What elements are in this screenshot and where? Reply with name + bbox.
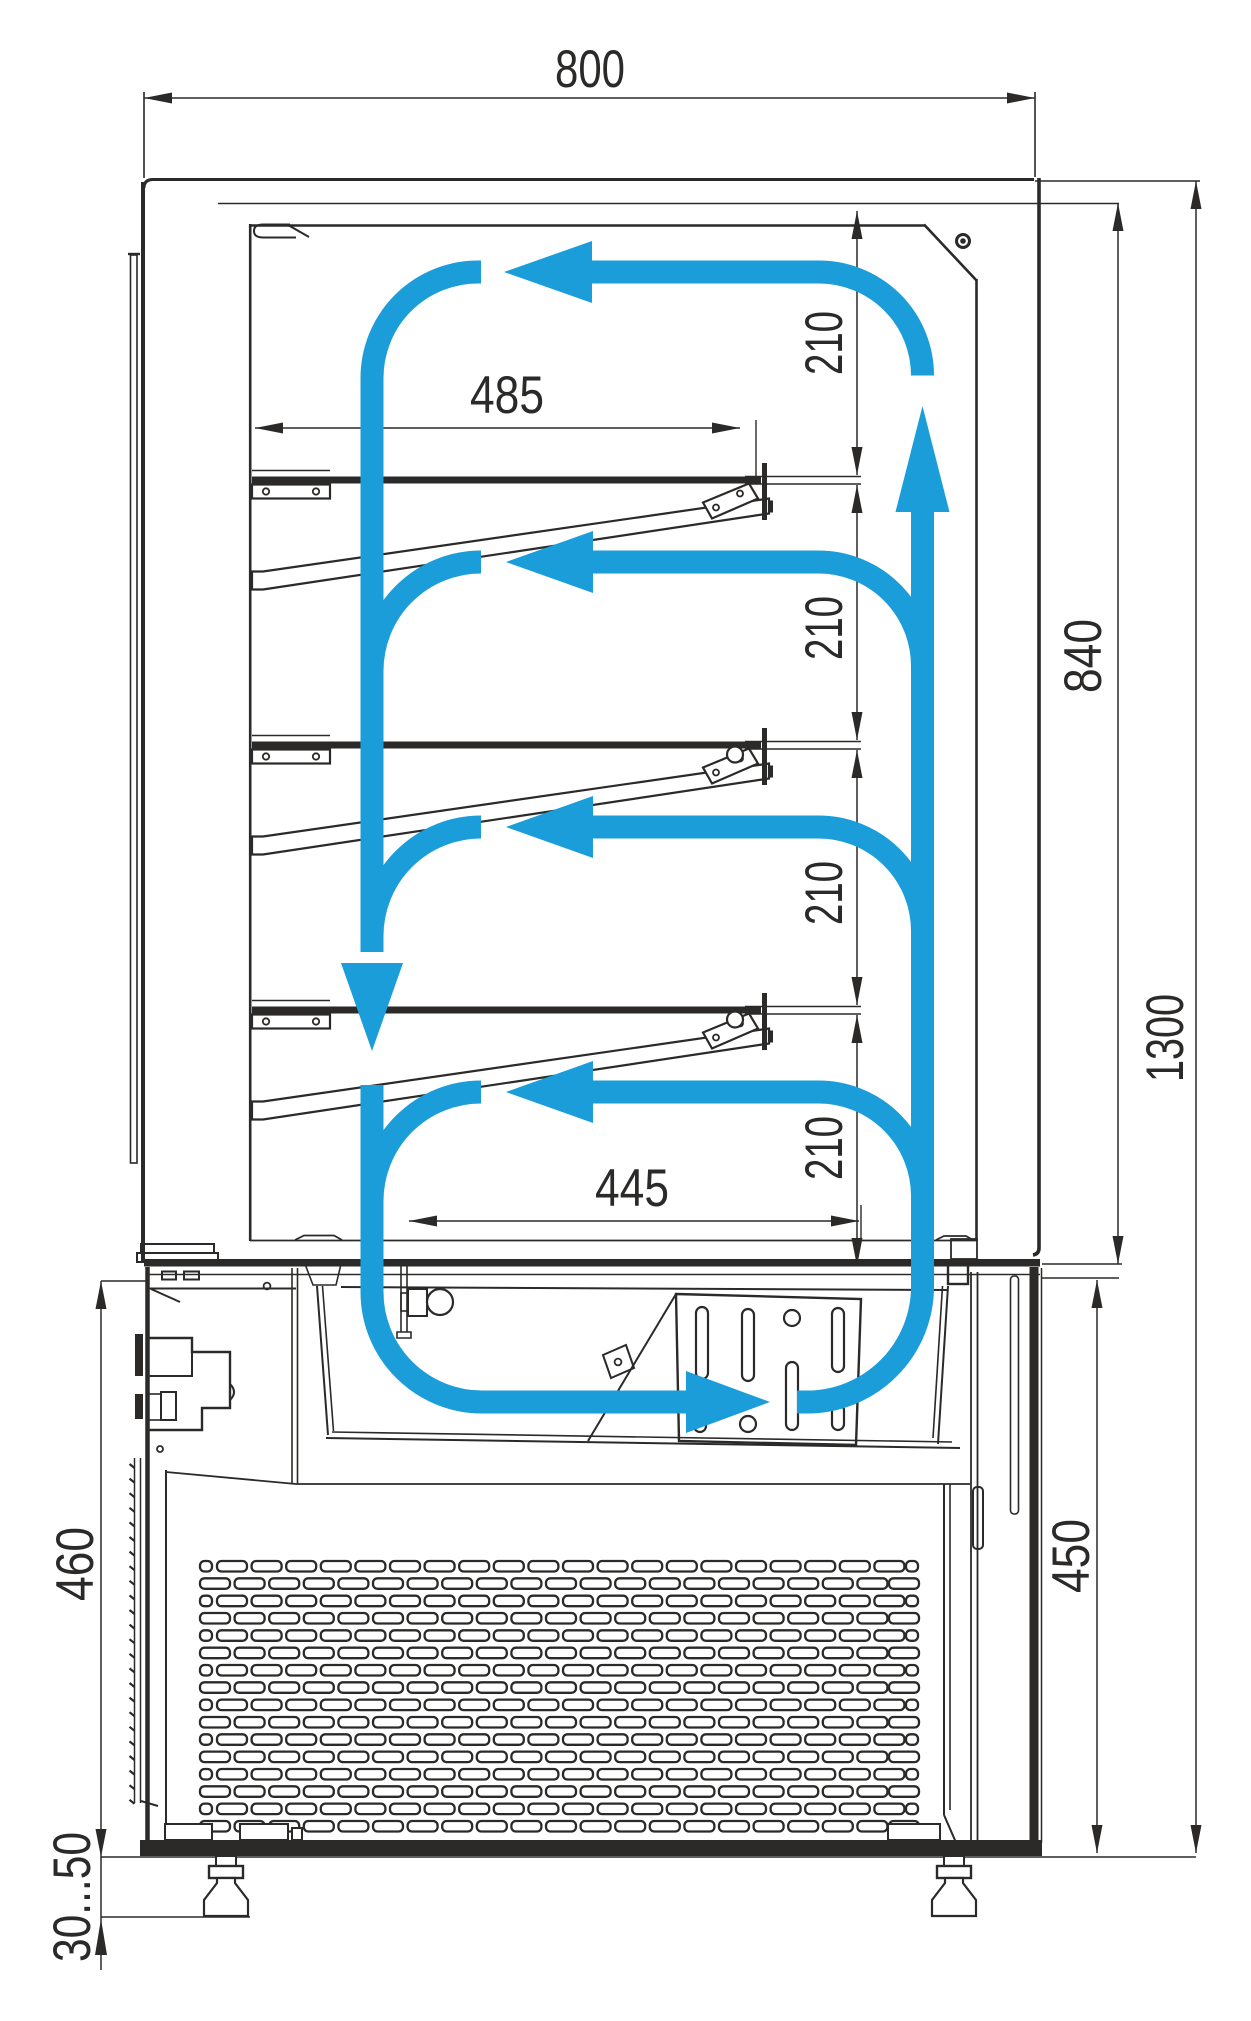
svg-text:450: 450 [1042, 1519, 1101, 1593]
svg-text:210: 210 [795, 861, 854, 925]
svg-text:210: 210 [795, 596, 854, 660]
svg-text:210: 210 [795, 311, 854, 375]
svg-text:460: 460 [46, 1527, 105, 1601]
svg-text:30...50: 30...50 [43, 1832, 102, 1962]
svg-text:445: 445 [595, 1159, 669, 1218]
svg-text:210: 210 [795, 1116, 854, 1180]
svg-text:800: 800 [555, 40, 625, 99]
svg-text:840: 840 [1054, 619, 1113, 693]
svg-text:485: 485 [470, 366, 544, 425]
svg-text:1300: 1300 [1136, 994, 1195, 1082]
